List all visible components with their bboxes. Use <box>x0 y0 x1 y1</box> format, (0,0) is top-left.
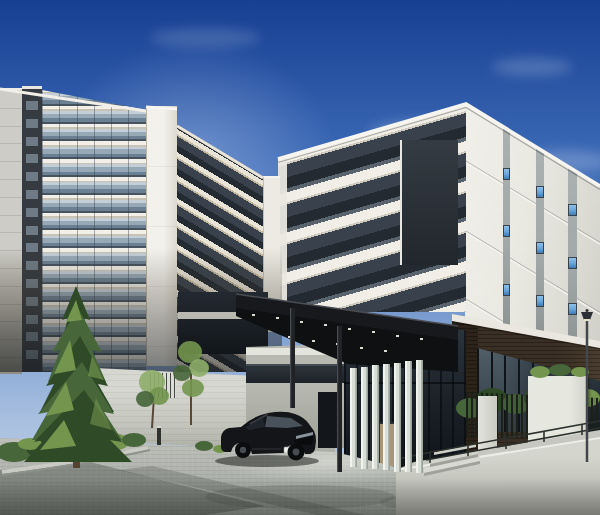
entrance-side-wall <box>246 344 344 448</box>
window <box>503 225 510 237</box>
window <box>536 186 544 198</box>
screen-panel <box>478 396 497 454</box>
louver-fin <box>361 367 368 469</box>
cloud <box>492 58 572 76</box>
window <box>536 242 544 254</box>
window <box>568 303 577 315</box>
louver-fin <box>383 364 390 470</box>
louver-fin <box>405 361 412 472</box>
wall-opening <box>62 392 100 438</box>
screen-panel <box>528 376 588 446</box>
louver-fin <box>416 360 423 473</box>
dark-balcony-bay <box>400 140 458 265</box>
louver-fin <box>394 363 401 472</box>
slab-edge <box>246 348 344 355</box>
seam-highlight <box>465 161 600 245</box>
entry-opening <box>318 392 342 448</box>
louver-fin <box>372 365 379 469</box>
glass-balustrade <box>246 364 344 383</box>
louver-fin <box>350 368 357 467</box>
window <box>568 204 577 216</box>
foreground-vignette <box>0 478 600 515</box>
wall-railing-panel <box>150 373 176 398</box>
seam-highlight <box>465 231 600 315</box>
window <box>503 284 510 296</box>
sign-plate <box>118 435 130 445</box>
window <box>536 295 544 307</box>
cloud <box>150 28 260 48</box>
window <box>503 168 510 180</box>
window <box>568 257 577 269</box>
low-wing <box>178 292 268 354</box>
slab-edge <box>178 312 242 319</box>
architectural-rendering: Daytime exterior CG rendering of a moder… <box>0 0 600 515</box>
bollard <box>157 426 161 445</box>
